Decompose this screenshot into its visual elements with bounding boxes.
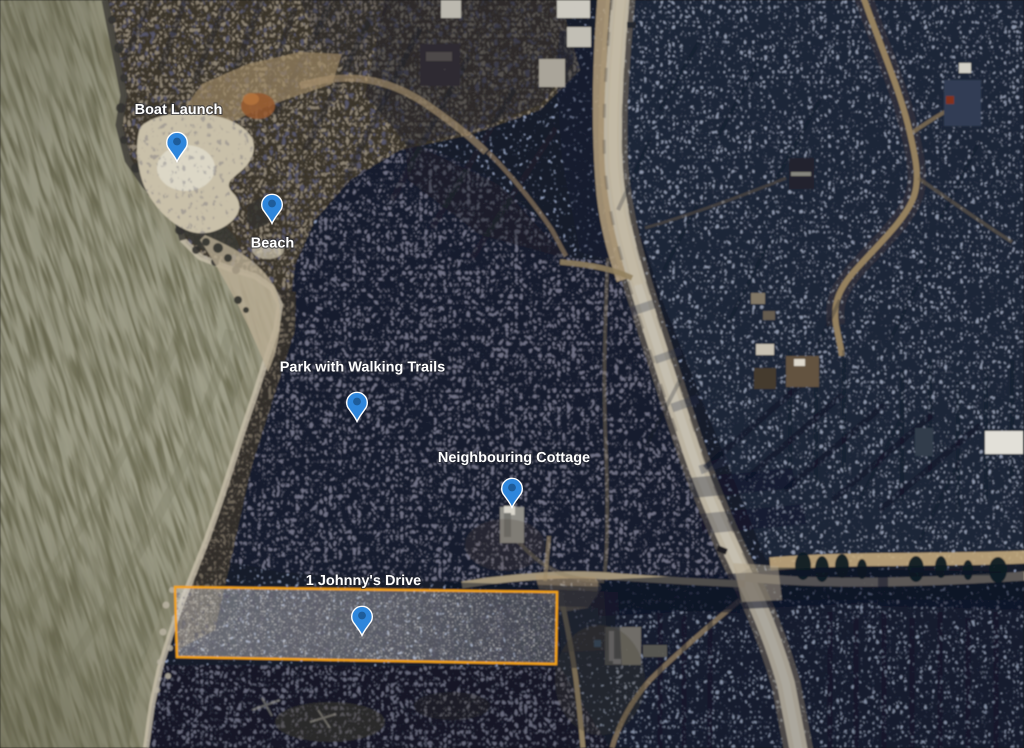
- svg-text:Beach: Beach: [251, 236, 295, 252]
- svg-text:Boat Launch: Boat Launch: [135, 102, 223, 118]
- svg-text:Park with Walking Trails: Park with Walking Trails: [280, 360, 445, 376]
- svg-text:Neighbouring Cottage: Neighbouring Cottage: [438, 450, 590, 466]
- svg-text:1 Johnny's Drive: 1 Johnny's Drive: [306, 573, 421, 589]
